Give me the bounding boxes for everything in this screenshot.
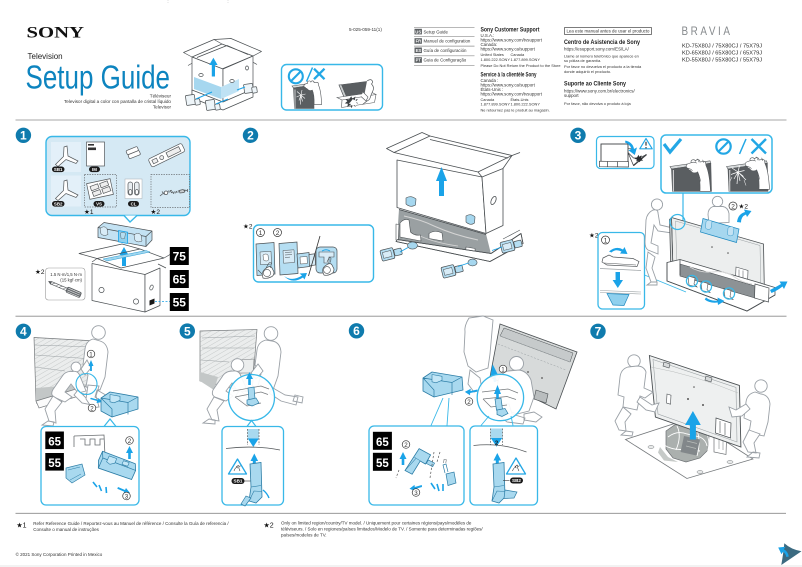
svg-text:Guía de configuración: Guía de configuración — [424, 48, 468, 53]
svg-text:Ne retournez pas le produit au: Ne retournez pas le produit au magasin. — [481, 107, 550, 112]
svg-text:3: 3 — [575, 129, 582, 143]
svg-text:★1: ★1 — [84, 208, 94, 216]
svg-text:★2: ★2 — [739, 203, 749, 211]
svg-text:Refer Reference Guide / Report: Refer Reference Guide / Reportez-vous au… — [33, 521, 229, 526]
svg-text:KD-55X80J / 55X80CJ / 55X79J: KD-55X80J / 55X80CJ / 55X79J — [682, 58, 763, 64]
svg-text:★2: ★2 — [243, 223, 253, 231]
svg-text:FR: FR — [416, 39, 422, 44]
svg-text:★1: ★1 — [16, 522, 26, 530]
svg-text:Por favor, não devolva o produ: Por favor, não devolva o produto à loja — [564, 101, 631, 106]
svg-text:5: 5 — [184, 324, 191, 338]
svg-text:VS: VS — [96, 201, 102, 206]
svg-text:55: 55 — [173, 296, 187, 310]
svg-text:1.5 N·m/1,5 N·m: 1.5 N·m/1,5 N·m — [50, 272, 82, 277]
svg-text:ES: ES — [416, 48, 422, 53]
svg-text:1.800.222.SONY: 1.800.222.SONY — [511, 102, 541, 107]
svg-text:2: 2 — [276, 230, 280, 237]
svg-text:Only on limited region/country: Only on limited region/country/TV model.… — [281, 521, 472, 526]
svg-text:2: 2 — [731, 203, 735, 210]
svg-text:Consulte o manual de instruçõe: Consulte o manual de instruções — [33, 527, 99, 532]
svg-text:Téléviseur: Téléviseur — [150, 94, 172, 99]
svg-text:1: 1 — [259, 230, 263, 237]
svg-text:Televisor digital a color con: Televisor digital a color con pantalla d… — [64, 99, 171, 104]
svg-text:5-025-059-11(1): 5-025-059-11(1) — [349, 27, 382, 32]
svg-text:SB2: SB2 — [512, 478, 521, 483]
svg-text:1: 1 — [89, 351, 93, 358]
svg-text:★2: ★2 — [264, 522, 274, 530]
svg-text:support: support — [564, 93, 579, 98]
svg-text:Setup Guide: Setup Guide — [26, 59, 171, 96]
svg-text:★2: ★2 — [35, 268, 45, 276]
svg-text:1.877.899.SONY: 1.877.899.SONY — [511, 57, 541, 62]
svg-text:2: 2 — [247, 129, 254, 143]
svg-text:65: 65 — [48, 436, 61, 448]
svg-text:1.877.899.SONY: 1.877.899.SONY — [481, 102, 511, 107]
svg-text:2: 2 — [90, 405, 94, 412]
svg-text:PT: PT — [416, 58, 422, 63]
svg-text:Televisor: Televisor — [153, 105, 172, 110]
svg-text:Manuel de configuration: Manuel de configuration — [424, 39, 471, 44]
svg-text:téléviseurs. / Solo en region: téléviseurs. / Solo en regiones/países l… — [281, 527, 483, 532]
svg-text:KD-75X80J / 75X80CJ / 75X79J: KD-75X80J / 75X80CJ / 75X79J — [682, 44, 763, 50]
svg-text:SONY: SONY — [27, 25, 85, 42]
svg-text:Lea este manual antes de usar: Lea este manual antes de usar el product… — [567, 29, 651, 34]
svg-text:3: 3 — [125, 493, 129, 500]
svg-text:donde adquirió el producto.: donde adquirió el producto. — [564, 69, 611, 74]
svg-text:65: 65 — [173, 273, 187, 287]
svg-text:75: 75 — [173, 250, 187, 264]
svg-text:países/modelos de TV.: países/modelos de TV. — [281, 533, 327, 538]
svg-text:SB1: SB1 — [54, 167, 63, 172]
svg-text:2: 2 — [467, 399, 471, 406]
svg-text:Centro de Asistencia de Sony: Centro de Asistencia de Sony — [564, 40, 641, 46]
svg-text:Guia de Configuração: Guia de Configuração — [424, 58, 467, 63]
svg-text:6: 6 — [353, 324, 360, 338]
svg-text:SB2: SB2 — [54, 201, 63, 206]
svg-text:7: 7 — [595, 325, 602, 339]
svg-text:55: 55 — [48, 458, 61, 470]
svg-text:SB1: SB1 — [234, 479, 243, 484]
svg-text:★2: ★2 — [151, 208, 161, 216]
svg-text:1: 1 — [501, 366, 505, 373]
svg-text:US: US — [415, 29, 421, 34]
svg-text:su póliza de garantía.: su póliza de garantía. — [564, 58, 601, 63]
svg-text:2: 2 — [404, 442, 408, 449]
svg-text:65: 65 — [376, 437, 389, 449]
svg-text:IM: IM — [92, 167, 97, 172]
svg-text:(15 kgf·cm): (15 kgf·cm) — [60, 278, 82, 283]
svg-text:1: 1 — [604, 237, 608, 244]
svg-text:1.800.222.SONY: 1.800.222.SONY — [481, 57, 511, 62]
svg-text:https://esupport.sony.com/ES/L: https://esupport.sony.com/ES/LA/ — [564, 47, 630, 52]
svg-text:Please Do Not Return the Produ: Please Do Not Return the Product to the … — [481, 63, 561, 68]
svg-text:3: 3 — [414, 490, 418, 497]
svg-text:1: 1 — [20, 129, 27, 143]
svg-text:n: n — [443, 458, 447, 465]
svg-text:BRAVIA: BRAVIA — [682, 26, 733, 38]
svg-text:https://www.sony.ca/support: https://www.sony.ca/support — [481, 47, 536, 52]
svg-text:55: 55 — [376, 458, 389, 470]
svg-text:© 2021 Sony Corporation Prin: © 2021 Sony Corporation Printed in Mexic… — [16, 551, 103, 557]
svg-text:https://www.sony.com/tvsupport: https://www.sony.com/tvsupport — [481, 92, 543, 97]
svg-text:CL: CL — [131, 201, 137, 206]
svg-text:Setup Guide: Setup Guide — [424, 29, 449, 34]
svg-text:4: 4 — [20, 325, 27, 339]
svg-text:Suporte ao Cliente Sony: Suporte ao Cliente Sony — [564, 82, 627, 88]
svg-text:KD-65X80J / 65X80CJ / 65X79J: KD-65X80J / 65X80CJ / 65X79J — [682, 51, 763, 57]
svg-text:2: 2 — [128, 438, 132, 445]
